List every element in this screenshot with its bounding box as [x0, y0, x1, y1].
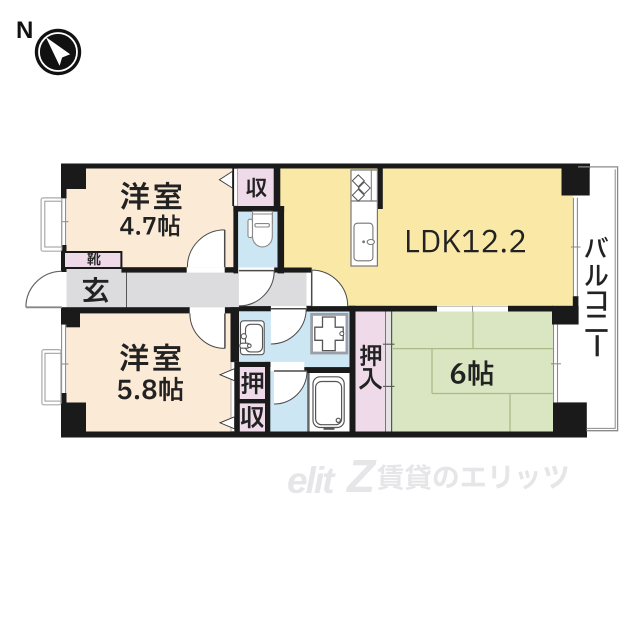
svg-text:N: N — [16, 17, 33, 44]
svg-text:Z: Z — [345, 450, 377, 502]
svg-text:elit: elit — [287, 460, 336, 501]
